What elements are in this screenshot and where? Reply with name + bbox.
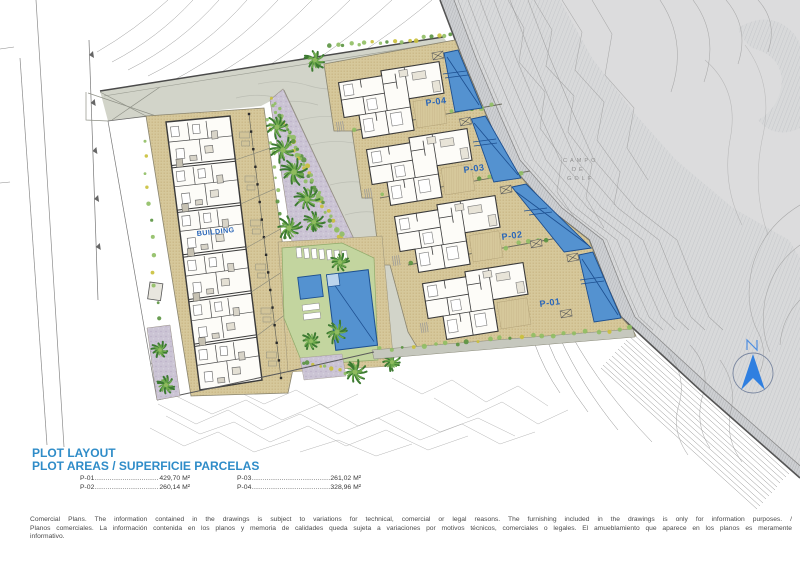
svg-text:GOLF: GOLF [567, 176, 594, 182]
svg-text:DE: DE [572, 167, 586, 173]
svg-text:CAMPO: CAMPO [563, 158, 599, 164]
